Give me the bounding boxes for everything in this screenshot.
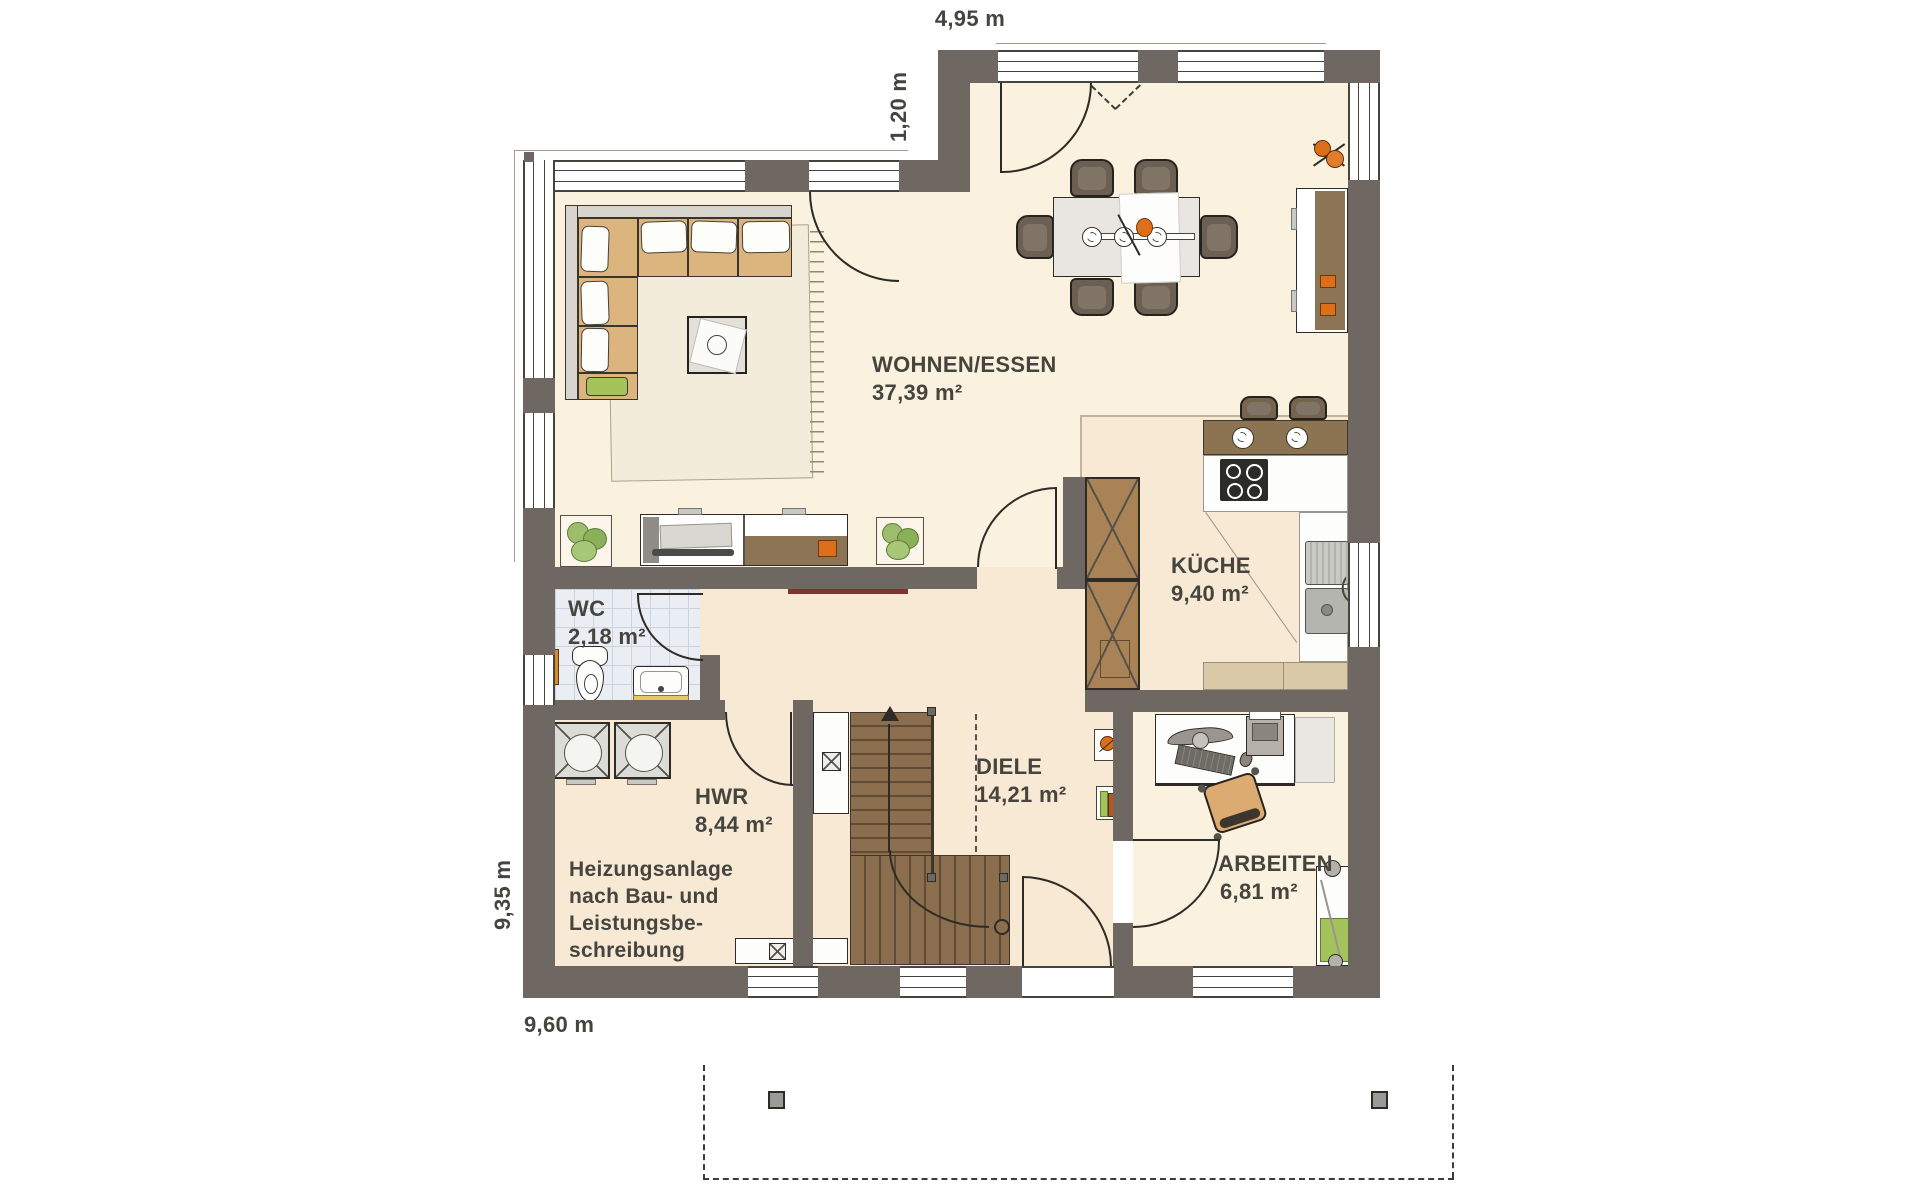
wall-left (523, 705, 555, 998)
stairs-post (999, 873, 1008, 882)
counter-divider (1283, 663, 1284, 689)
sofa-pillow (640, 220, 687, 254)
wall-top-left (745, 160, 809, 192)
sideboard-foot (678, 508, 702, 515)
decor-orange-icon (1136, 218, 1153, 237)
room-area-kueche: 9,40 m² (1171, 581, 1249, 607)
terrace-outline-right (1452, 1065, 1454, 1178)
dimension-top: 4,95 m (920, 6, 1020, 32)
decor-orange-box (1320, 275, 1336, 288)
room-label-diele: DIELE (976, 754, 1042, 780)
window (900, 966, 966, 998)
dining-chair (1134, 159, 1178, 197)
stairs-rail (931, 712, 934, 878)
wall-diele-arbeiten (1113, 712, 1133, 841)
sofa-pillow (580, 226, 610, 273)
wall-top-left (899, 160, 938, 192)
monitor-base-icon (1192, 732, 1209, 749)
kitchen-peninsula (1203, 420, 1348, 455)
plant-icon (560, 515, 612, 567)
sink-drainer (1305, 541, 1349, 585)
window (1348, 543, 1380, 647)
sill-line (514, 150, 908, 151)
heating-note-line: nach Bau- und (569, 883, 733, 910)
window (748, 966, 818, 998)
bar-stool (1289, 396, 1327, 420)
place-setting-icon (1082, 227, 1102, 247)
sofa-green-cushion (586, 377, 628, 396)
terrace-post (768, 1091, 785, 1109)
wall-living-hall (555, 567, 977, 589)
printer-icon (1246, 716, 1284, 756)
dryer-icon (614, 722, 671, 779)
washing-machine-icon (553, 722, 610, 779)
decor-orange-box (1320, 303, 1336, 316)
window (523, 160, 555, 378)
window (1178, 50, 1324, 83)
dimension-step: 1,20 m (886, 50, 912, 142)
terrace-outline-left (703, 1065, 705, 1180)
wall-hwr-right (793, 700, 813, 966)
decor-bowl-icon (707, 335, 727, 355)
room-label-wc: WC (568, 596, 605, 622)
window (998, 50, 1138, 83)
terrace-door-band (809, 160, 899, 192)
sofa-back-top (565, 205, 792, 218)
room-label-hwr: HWR (695, 784, 748, 810)
floor-plan-canvas: 4,95 m 1,20 m 9,35 m 9,60 m WOHNEN/ESSEN… (0, 0, 1920, 1200)
room-area-diele: 14,21 m² (976, 782, 1066, 808)
wall-left (523, 378, 555, 413)
wall-top-upper (1138, 50, 1178, 83)
stairs-newel (994, 919, 1010, 935)
sofa-pillow (580, 281, 610, 326)
wall-bottom (966, 966, 1022, 998)
sofa-back-left (565, 205, 578, 400)
kitchen-floor-edge-left (1080, 415, 1082, 477)
dining-chair (1200, 215, 1238, 259)
wall-bottom (1114, 966, 1193, 998)
kitchen-tall-cabinet (1085, 580, 1140, 690)
rug-fringe (810, 231, 824, 475)
sofa-pillow (742, 221, 791, 254)
wall-left (523, 508, 555, 655)
tv-speaker (643, 517, 659, 563)
sofa-pillow (690, 220, 737, 254)
wall-kitchen-stub (1063, 477, 1085, 589)
hotplate-icon (1232, 427, 1254, 449)
dimension-bottom: 9,60 m (524, 1012, 594, 1038)
terrace-post (1371, 1091, 1388, 1109)
floor-hall-passage (977, 567, 1057, 589)
wall-kitchen-arbeiten (1085, 690, 1380, 712)
sideboard-foot (782, 508, 806, 515)
window (1348, 83, 1380, 180)
sill-line (996, 43, 1326, 44)
hotplate-icon (1286, 427, 1308, 449)
kitchen-counter-bottom (1203, 662, 1348, 690)
window (523, 655, 555, 705)
room-area-wohnen: 37,39 m² (872, 380, 962, 406)
dining-chair (1016, 215, 1054, 259)
dining-chair (1134, 278, 1178, 316)
dining-chair (1070, 159, 1114, 197)
plant-icon (876, 517, 924, 565)
tv-sideboard-divider (743, 515, 745, 565)
terrace-outline-bottom (703, 1178, 1454, 1180)
dimension-left: 9,35 m (490, 838, 516, 930)
tv-bar (652, 549, 734, 556)
room-area-wc: 2,18 m² (568, 624, 646, 650)
cooktop-icon (1220, 459, 1268, 501)
kitchen-tall-cabinet (1085, 477, 1140, 580)
sill-line (514, 150, 515, 562)
sideboard-handle (1291, 290, 1297, 312)
heating-note-line: Heizungsanlage (569, 856, 733, 883)
shelf-symbol-icon (822, 752, 841, 771)
heating-note-line: Leistungsbe- (569, 910, 733, 937)
machine-door (566, 779, 596, 785)
window (523, 160, 745, 192)
dining-chair (1070, 278, 1114, 316)
bar-stool (1240, 396, 1278, 420)
heating-note: Heizungsanlage nach Bau- und Leistungsbe… (569, 856, 733, 964)
stairs-walk-line (888, 724, 890, 852)
hall-lowboard (735, 938, 848, 964)
desk-side-unit (1295, 717, 1335, 783)
machine-door (627, 779, 657, 785)
wall-step (938, 50, 970, 192)
wall-top-upper (1324, 50, 1380, 83)
wall-bottom (818, 966, 900, 998)
stairs-post (927, 873, 936, 882)
stairs-upper-flight (850, 712, 934, 858)
entry-door-opening (1022, 966, 1114, 998)
shrub-icon (1308, 136, 1348, 176)
sill-corner-block (524, 152, 534, 162)
room-label-wohnen: WOHNEN/ESSEN (872, 352, 1057, 378)
sideboard-handle (1291, 208, 1297, 230)
stairs-up-arrow-icon (881, 706, 899, 721)
window (523, 413, 555, 508)
wall-bottom (523, 966, 748, 998)
window (1193, 966, 1293, 998)
stairs-post (927, 707, 936, 716)
wall-right (1348, 180, 1380, 543)
shelf-symbol-icon (769, 943, 786, 960)
wc-sink (633, 666, 689, 698)
room-area-arbeiten: 6,81 m² (1220, 879, 1298, 905)
sofa-pillow (581, 328, 610, 372)
tv-screen (660, 523, 733, 549)
room-area-hwr: 8,44 m² (695, 812, 773, 838)
wall-diele-arbeiten (1113, 923, 1133, 966)
heating-note-line: schreibung (569, 937, 733, 964)
room-label-kueche: KÜCHE (1171, 553, 1251, 579)
decor-orange-box (818, 540, 837, 557)
room-label-arbeiten: ARBEITEN (1218, 851, 1333, 877)
